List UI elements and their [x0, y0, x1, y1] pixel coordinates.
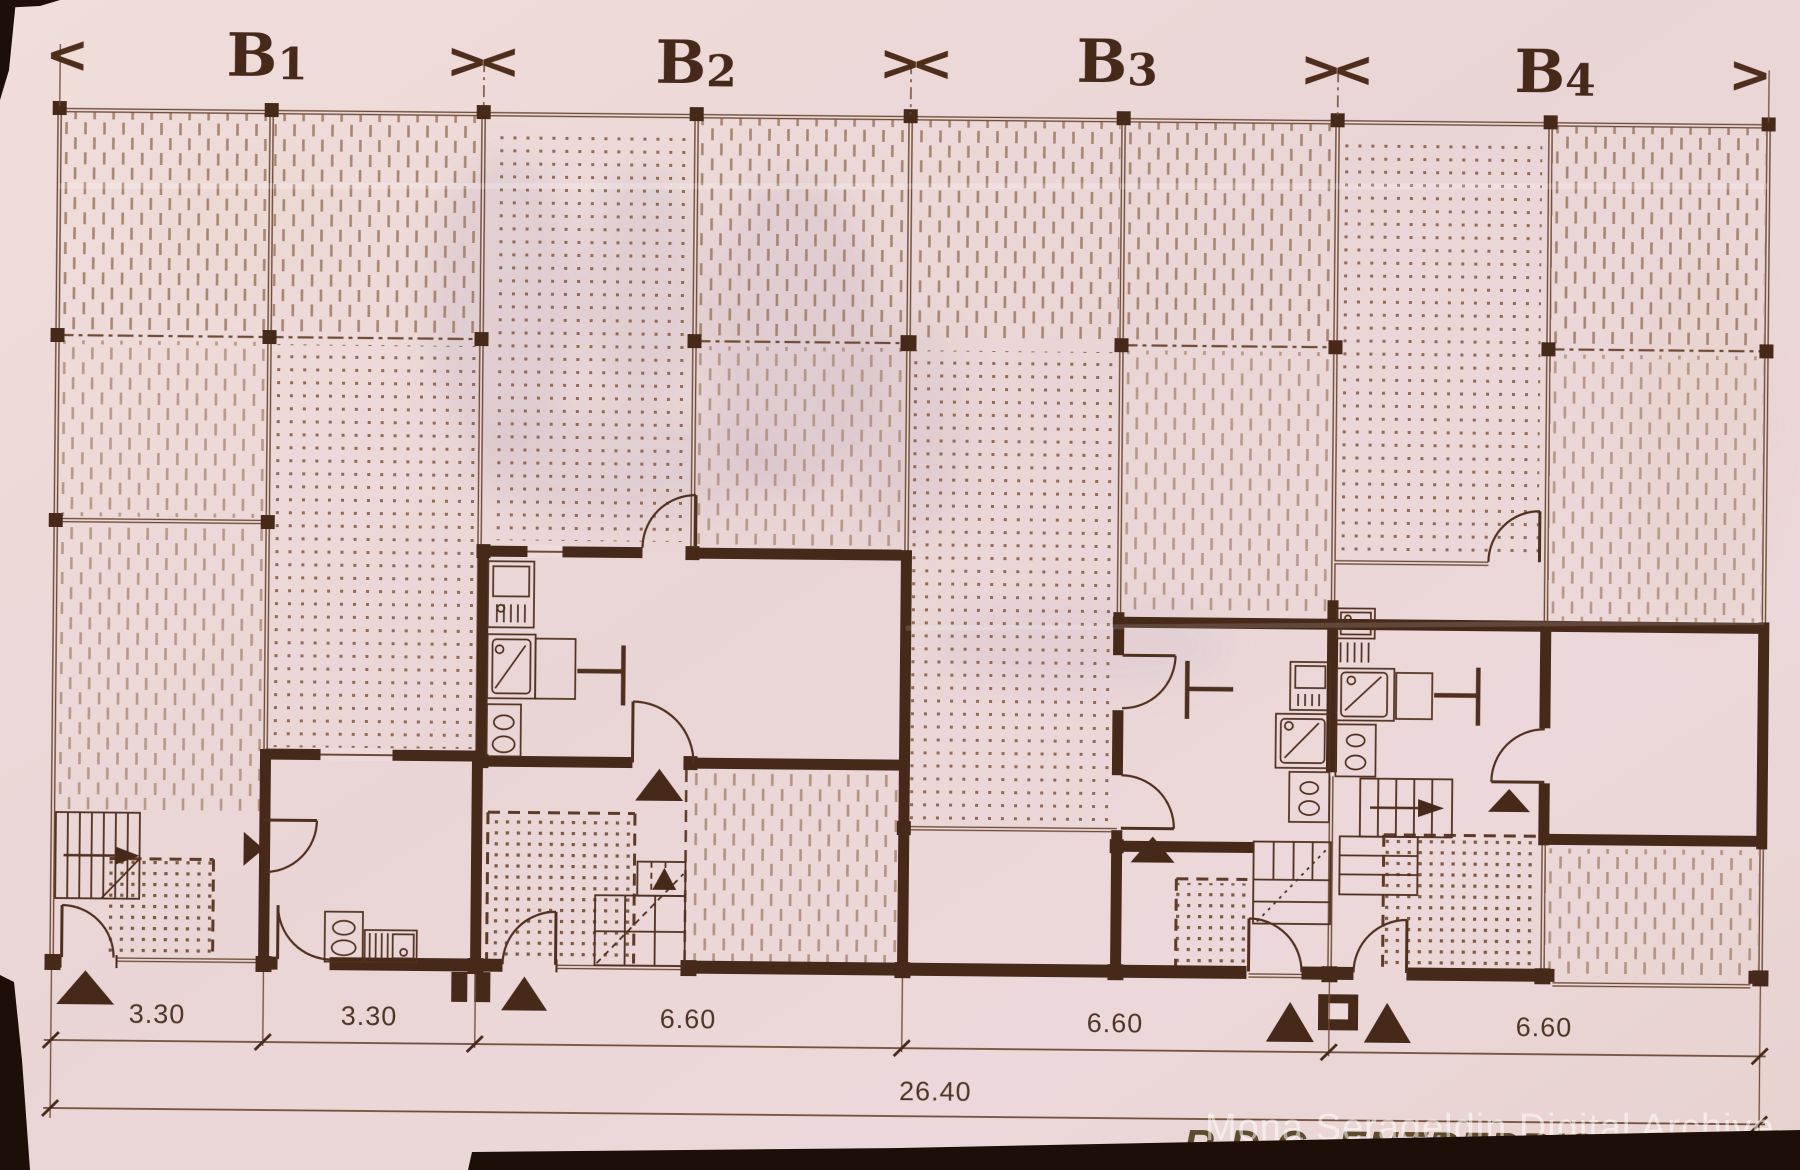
dim-seg-2: 3.30	[341, 1001, 398, 1032]
dim-seg-3: 6.60	[660, 1004, 717, 1035]
floor-plan-scan: < B1 >< B2 >< B3 >< B4 > 3.30	[0, 0, 1800, 1170]
dim-seg-4: 6.60	[1087, 1008, 1144, 1039]
bay-b2-base: B	[655, 28, 706, 98]
bay-b3-index: 3	[1127, 45, 1158, 96]
separator-icon-2: ><	[879, 34, 948, 93]
bay-b2-index: 2	[706, 46, 737, 97]
bay-b1-index: 1	[277, 39, 308, 90]
bay-b4-base: B	[1514, 37, 1565, 107]
floor-plan-svg: < B1 >< B2 >< B3 >< B4 > 3.30	[0, 0, 1800, 1170]
edge-arrow-left-icon: <	[45, 25, 89, 85]
bay-b3-base: B	[1076, 27, 1127, 97]
dim-seg-1: 3.30	[129, 999, 186, 1030]
edge-arrow-right-icon: >	[1728, 45, 1772, 105]
dim-total: 26.40	[899, 1076, 972, 1107]
separator-icon-3: ><	[1300, 40, 1369, 99]
dim-seg-5: 6.60	[1516, 1012, 1573, 1043]
separator-icon-1: ><	[446, 32, 515, 91]
bay-b4-index: 4	[1565, 55, 1596, 106]
bay-b1-base: B	[226, 21, 277, 91]
